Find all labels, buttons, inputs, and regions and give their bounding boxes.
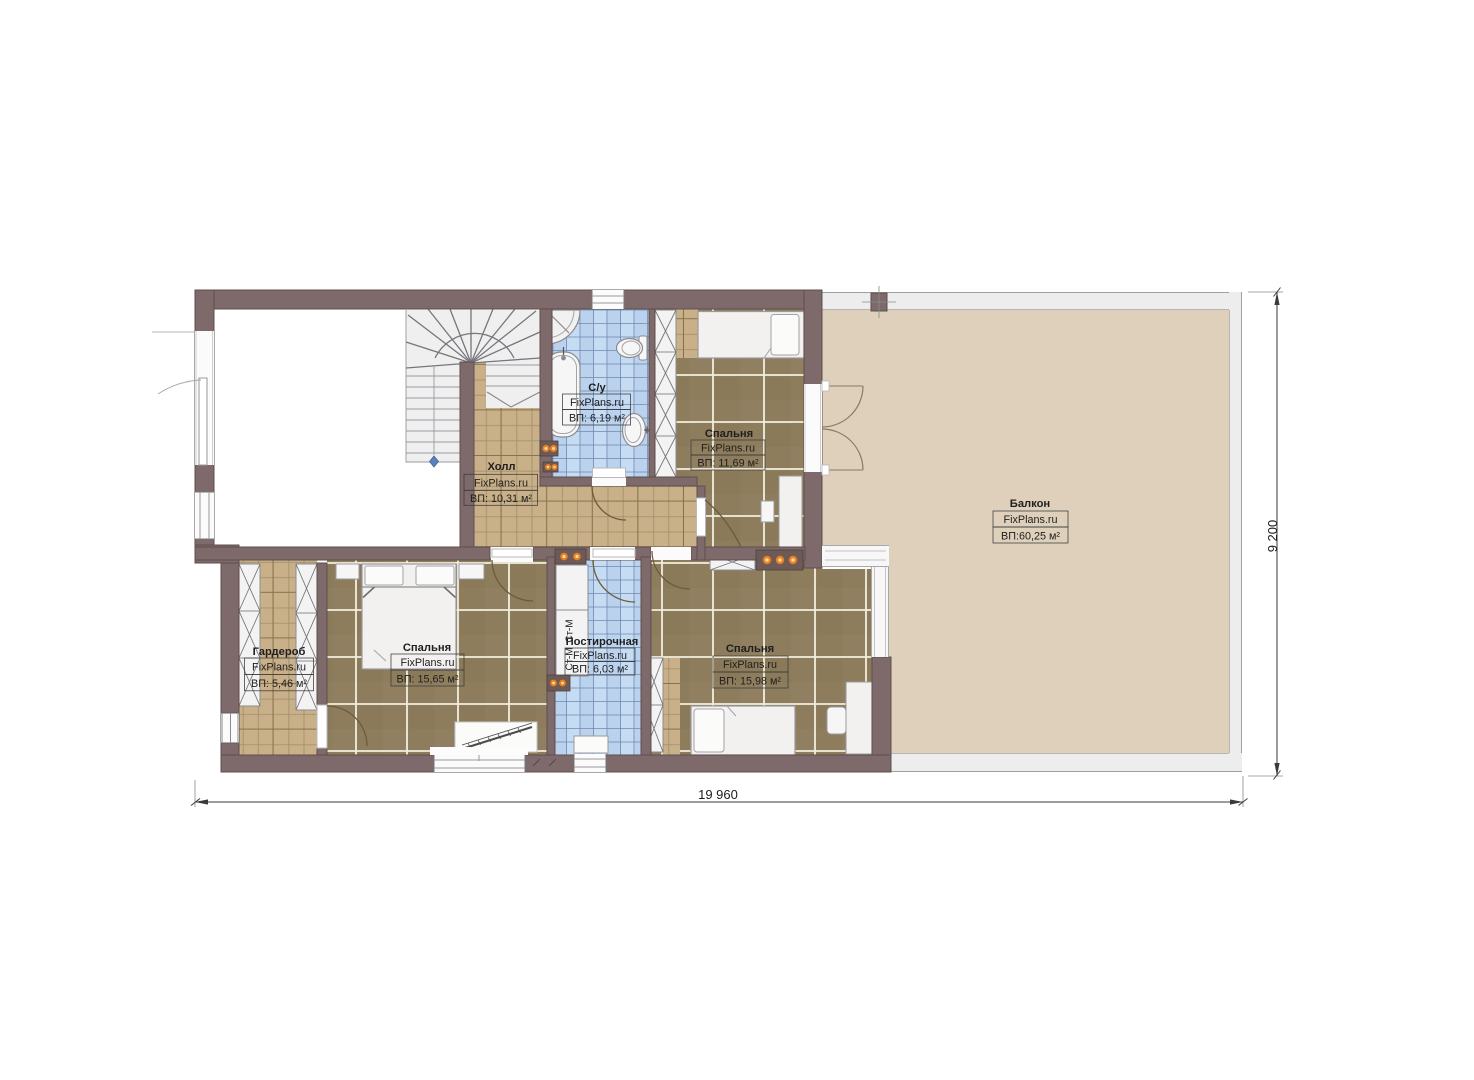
svg-text:ВП: 11,69 м²: ВП: 11,69 м² [697, 458, 759, 470]
svg-text:С/у: С/у [588, 382, 606, 394]
svg-text:ВП: 10,31 м²: ВП: 10,31 м² [470, 493, 532, 505]
svg-text:FixPlans.ru: FixPlans.ru [573, 650, 627, 662]
svg-text:Холл: Холл [487, 461, 515, 473]
svg-text:ВП: 15,98 м²: ВП: 15,98 м² [719, 676, 781, 688]
svg-text:FixPlans.ru: FixPlans.ru [474, 477, 528, 489]
svg-text:ВП: 15,65 м²: ВП: 15,65 м² [397, 674, 459, 686]
svg-text:FixPlans.ru: FixPlans.ru [723, 659, 777, 671]
svg-text:ВП: 5,46 м²: ВП: 5,46 м² [251, 678, 307, 690]
svg-text:FixPlans.ru: FixPlans.ru [1003, 514, 1057, 526]
svg-text:FixPlans.ru: FixPlans.ru [400, 657, 454, 669]
svg-text:19 960: 19 960 [698, 787, 738, 802]
svg-text:ВП: 6,03 м²: ВП: 6,03 м² [572, 663, 628, 675]
svg-text:ВП:60,25 м²: ВП:60,25 м² [1001, 531, 1060, 543]
svg-text:FixPlans.ru: FixPlans.ru [701, 443, 755, 455]
svg-text:Спальня: Спальня [403, 642, 451, 654]
svg-text:Постирочная: Постирочная [566, 636, 639, 648]
svg-text:Гардероб: Гардероб [253, 646, 306, 658]
svg-text:FixPlans.ru: FixPlans.ru [252, 662, 306, 674]
svg-text:FixPlans.ru: FixPlans.ru [570, 397, 624, 409]
svg-text:ВП: 6,19 м²: ВП: 6,19 м² [569, 413, 625, 425]
svg-text:Спальня: Спальня [726, 643, 774, 655]
svg-text:Спальня: Спальня [705, 428, 753, 440]
svg-text:9 200: 9 200 [1265, 520, 1280, 553]
svg-text:Балкон: Балкон [1010, 498, 1050, 510]
